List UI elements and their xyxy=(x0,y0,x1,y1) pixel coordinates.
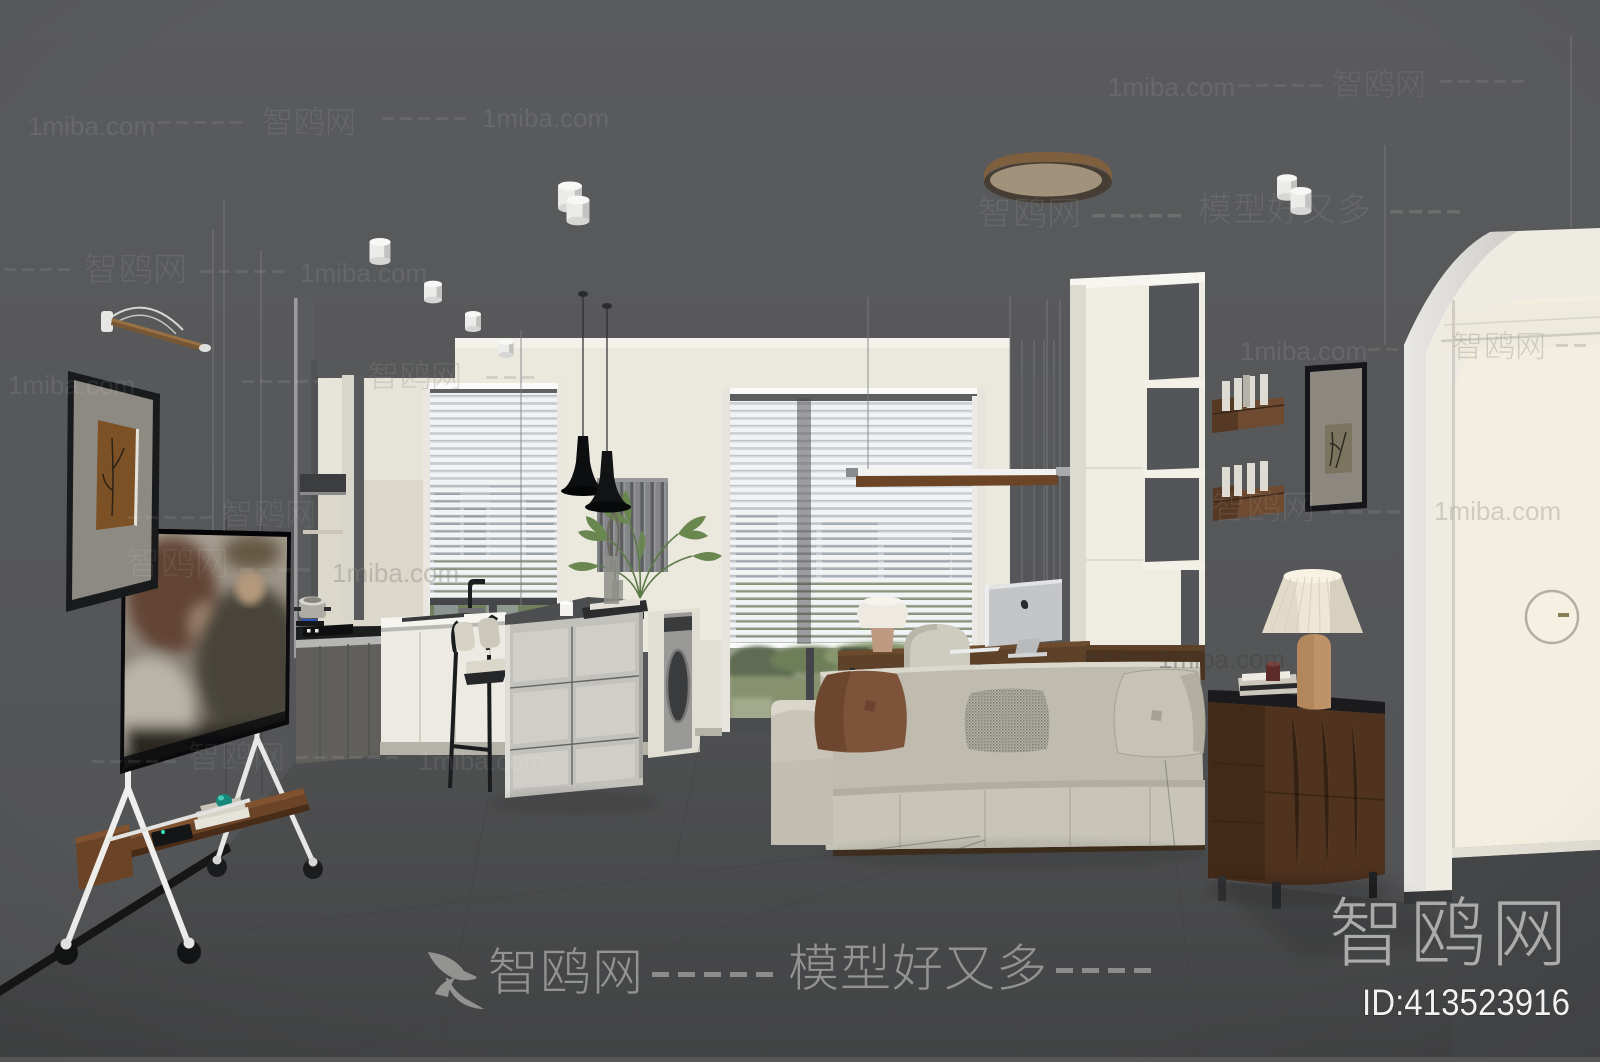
svg-text:1miba.com: 1miba.com xyxy=(28,111,155,141)
svg-text:ID:413523916: ID:413523916 xyxy=(1362,982,1570,1023)
svg-text:1miba.com: 1miba.com xyxy=(8,370,135,400)
svg-text:1miba.com: 1miba.com xyxy=(300,258,427,288)
svg-text:1miba.com: 1miba.com xyxy=(1108,72,1235,102)
svg-text:1miba.com: 1miba.com xyxy=(418,746,545,776)
svg-text:1miba.com: 1miba.com xyxy=(1158,644,1285,674)
svg-text:1miba.com: 1miba.com xyxy=(1240,336,1367,366)
svg-text:1miba.com: 1miba.com xyxy=(332,558,459,588)
svg-text:1miba.com: 1miba.com xyxy=(1434,496,1561,526)
svg-text:1miba.com: 1miba.com xyxy=(482,103,609,133)
